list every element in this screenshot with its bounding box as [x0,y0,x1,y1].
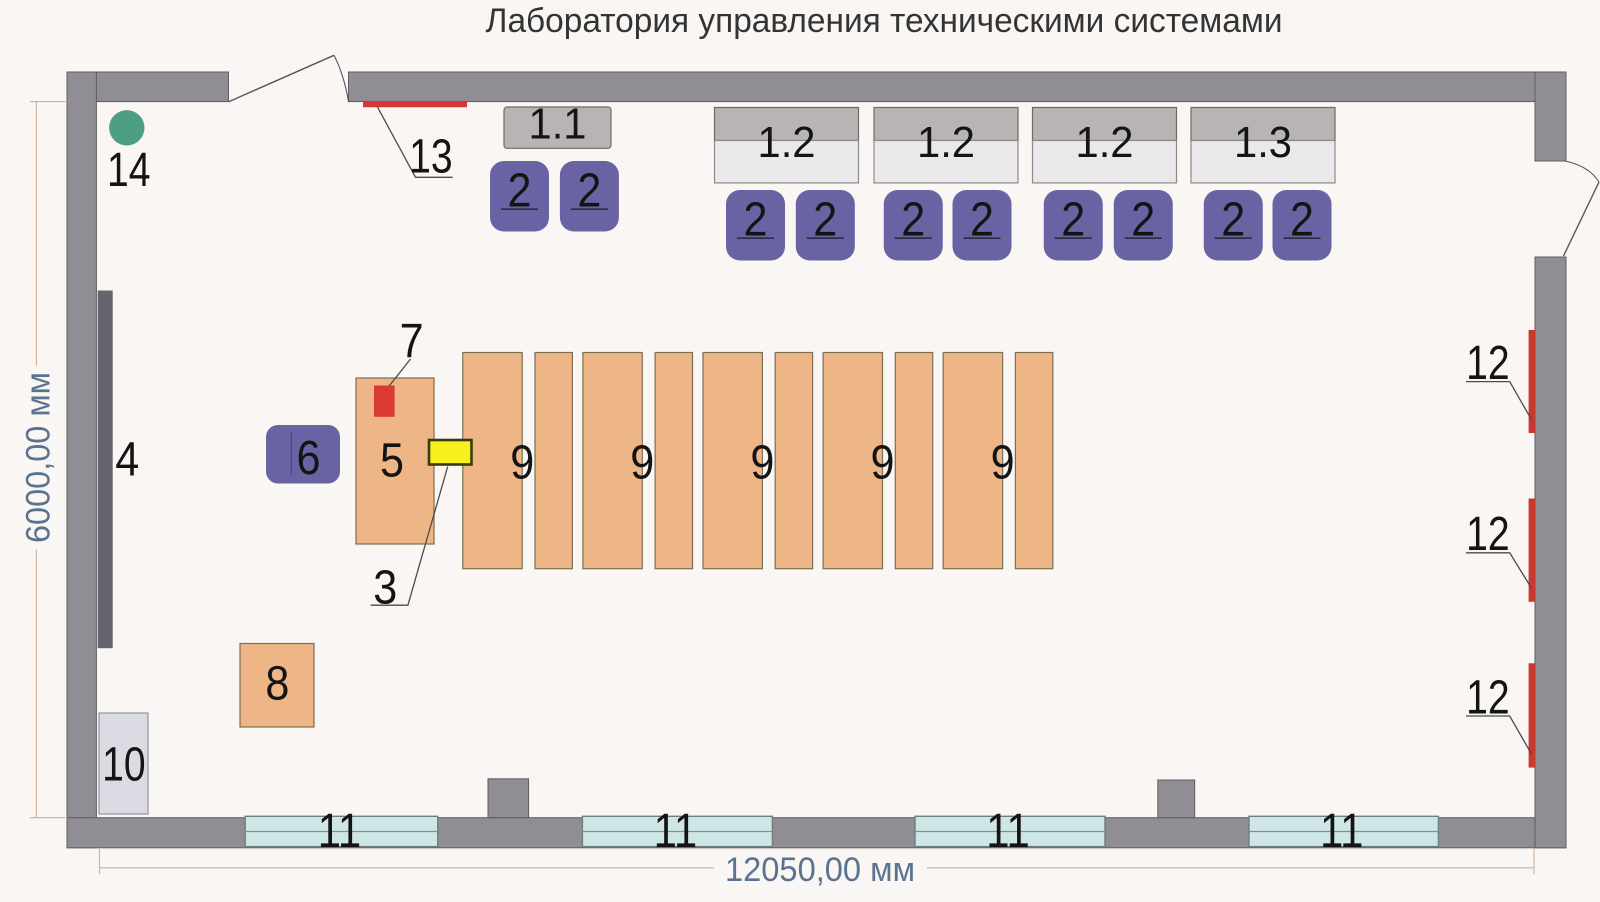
svg-text:6: 6 [297,432,321,485]
svg-text:9: 9 [750,436,774,489]
svg-text:11: 11 [986,805,1030,858]
svg-text:11: 11 [1320,805,1364,858]
svg-text:Лаборатория управления техниче: Лаборатория управления техническими сист… [486,2,1283,40]
svg-text:1.2: 1.2 [1076,118,1134,167]
svg-text:11: 11 [654,805,698,858]
svg-text:12: 12 [1466,508,1510,561]
svg-text:4: 4 [115,434,139,487]
svg-text:14: 14 [107,144,151,197]
svg-text:12050,00 мм: 12050,00 мм [725,851,915,889]
svg-text:12: 12 [1466,337,1510,390]
svg-text:13: 13 [409,131,453,184]
svg-text:6000,00 мм: 6000,00 мм [20,372,58,543]
svg-text:9: 9 [510,436,534,489]
svg-text:9: 9 [630,436,654,489]
svg-text:1.2: 1.2 [917,118,975,167]
svg-text:9: 9 [991,436,1015,489]
svg-text:1.2: 1.2 [758,118,816,167]
svg-text:3: 3 [373,561,397,614]
svg-text:11: 11 [318,805,362,858]
svg-text:12: 12 [1466,671,1510,724]
svg-text:9: 9 [871,436,895,489]
svg-text:8: 8 [265,658,289,711]
svg-text:5: 5 [380,435,404,488]
svg-text:7: 7 [400,315,424,368]
svg-text:1.3: 1.3 [1234,118,1292,167]
svg-text:10: 10 [102,739,146,792]
svg-text:1.1: 1.1 [529,100,587,149]
